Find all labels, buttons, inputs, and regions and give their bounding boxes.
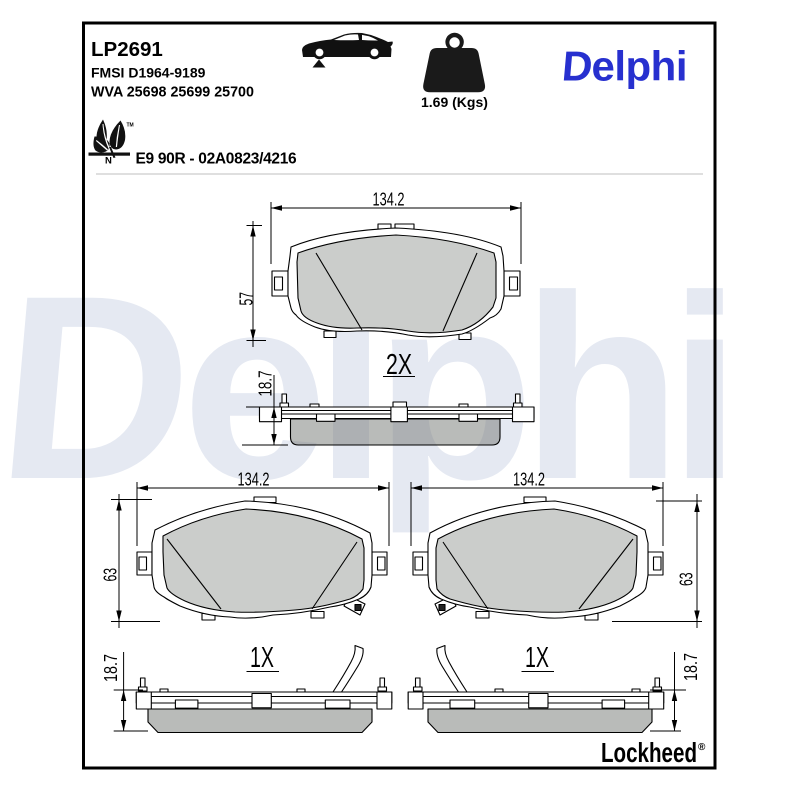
svg-text:1X: 1X — [250, 642, 274, 674]
svg-text:57: 57 — [237, 292, 257, 306]
svg-text:N: N — [105, 156, 112, 167]
svg-text:134.2: 134.2 — [513, 470, 545, 490]
svg-text:Lockheed: Lockheed — [601, 737, 697, 768]
svg-text:elphi: elphi — [592, 43, 688, 90]
svg-text:D: D — [560, 43, 594, 90]
svg-text:E9 90R - 02A0823/4216: E9 90R - 02A0823/4216 — [136, 151, 298, 168]
svg-text:18.7: 18.7 — [256, 371, 276, 397]
svg-text:LP2691: LP2691 — [91, 38, 163, 61]
svg-text:D: D — [0, 240, 204, 533]
svg-text:134.2: 134.2 — [238, 470, 270, 490]
svg-text:18.7: 18.7 — [101, 654, 121, 682]
svg-text:FMSI D1964-9189: FMSI D1964-9189 — [91, 65, 206, 81]
svg-text:1X: 1X — [525, 642, 549, 674]
svg-text:TM: TM — [127, 123, 134, 129]
svg-text:63: 63 — [101, 568, 121, 582]
svg-text:WVA 25698 25699 25700: WVA 25698 25699 25700 — [91, 85, 254, 101]
svg-text:134.2: 134.2 — [373, 190, 405, 210]
svg-text:18.7: 18.7 — [681, 653, 701, 681]
svg-text:®: ® — [698, 742, 706, 753]
svg-text:1.69 (Kgs): 1.69 (Kgs) — [421, 94, 488, 110]
svg-text:63: 63 — [677, 573, 697, 587]
